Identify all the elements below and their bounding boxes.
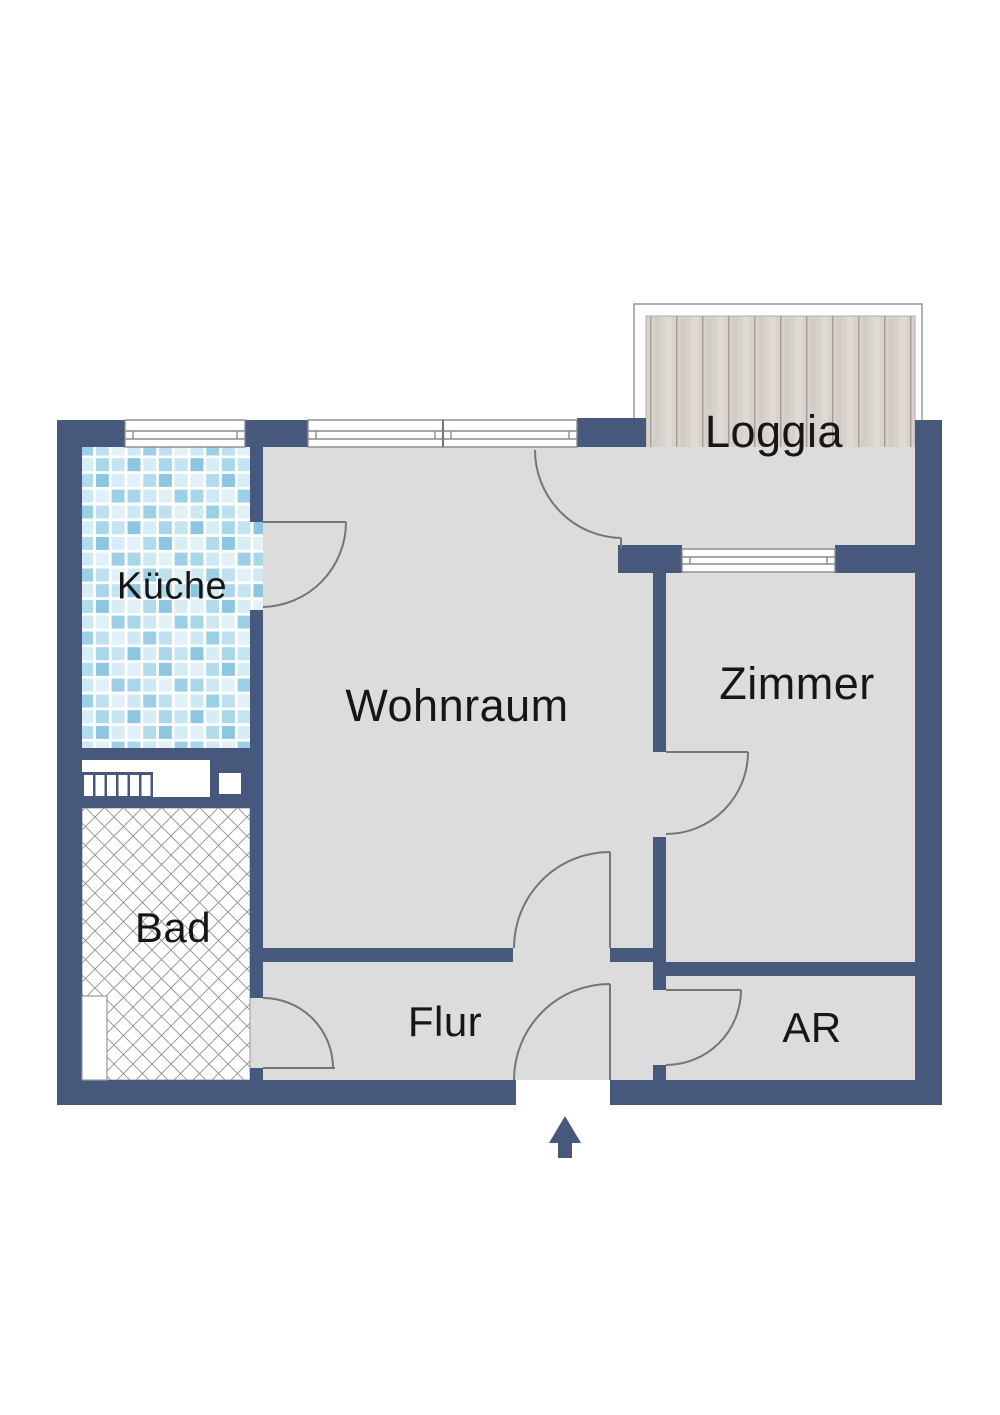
room-label-kueche: Küche (117, 566, 227, 609)
bath-niche (82, 996, 107, 1080)
room-label-loggia: Loggia (705, 406, 843, 458)
fixture-box (219, 773, 241, 794)
kitchen-window (125, 420, 245, 447)
room-label-bad: Bad (135, 904, 211, 952)
room-label-ar: AR (782, 1004, 841, 1052)
room-loggia-window (682, 549, 835, 572)
livingroom-window-left (308, 420, 443, 447)
livingroom-window-right (443, 420, 577, 447)
room-label-wohnraum: Wohnraum (345, 680, 568, 732)
room-label-zimmer: Zimmer (719, 658, 874, 710)
floorplan-canvas: Küche Wohnraum Loggia Zimmer Bad Flur AR (0, 0, 1000, 1415)
room-label-flur: Flur (408, 998, 482, 1046)
entrance-arrow-icon (549, 1116, 581, 1158)
